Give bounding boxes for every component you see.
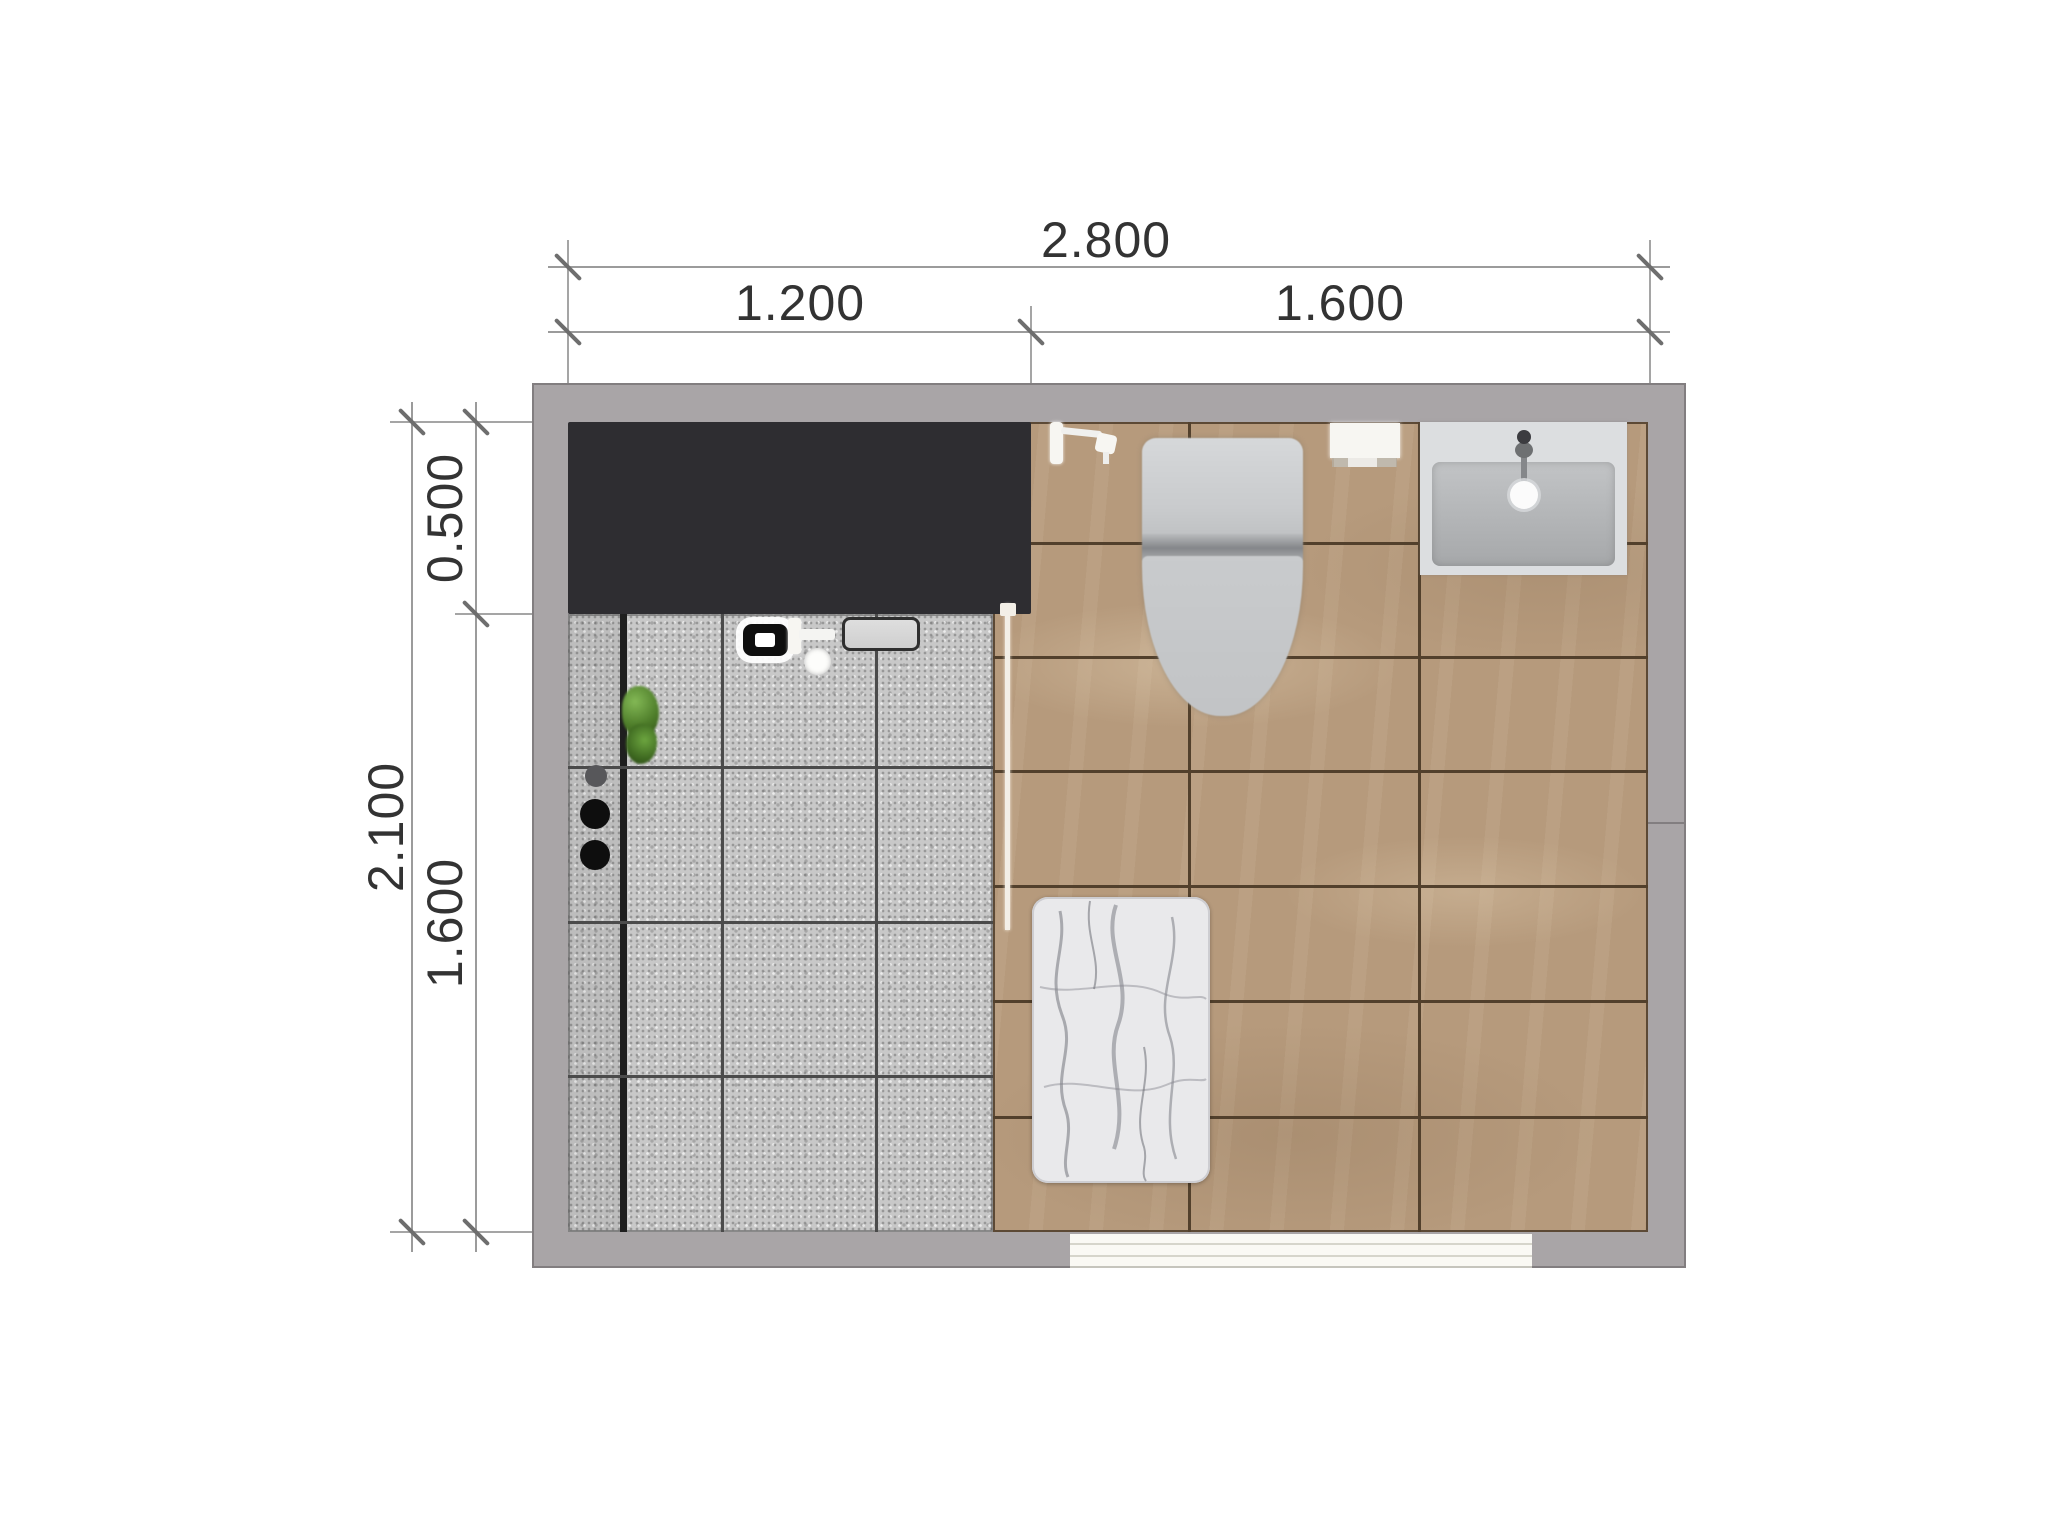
marble-bath-mat	[1032, 897, 1210, 1183]
supply-dot-gray	[585, 765, 607, 787]
wall-cistern-box	[1330, 423, 1400, 458]
toilet-tank	[1142, 438, 1303, 538]
floor-drain-icon	[804, 648, 831, 675]
hand-shower-stem	[1103, 452, 1109, 464]
shower-control-panel	[743, 624, 788, 656]
supply-dot-black	[580, 840, 610, 870]
toilet	[1142, 438, 1303, 716]
door-threshold	[1070, 1234, 1532, 1268]
wall-box-foot	[1377, 458, 1397, 467]
dim-label-height-bottom: 1.600	[416, 858, 474, 988]
dimension-line-width-segments	[548, 331, 1670, 333]
faucet-knob	[1515, 442, 1533, 458]
washbasin-drain	[1510, 481, 1538, 509]
marble-veins	[1032, 897, 1210, 1183]
dim-label-height-top: 0.500	[416, 453, 474, 583]
wall-box-foot	[1332, 458, 1348, 467]
door-track-line	[1070, 1243, 1532, 1245]
vanity-counter	[568, 422, 1031, 614]
grout-line	[993, 656, 1648, 659]
grout-line	[993, 770, 1648, 773]
grout-line	[568, 1075, 993, 1078]
floor-plan: 2.800 1.200 1.600 2.100 0.500 1.600	[0, 0, 2048, 1536]
grout-line	[993, 885, 1648, 888]
dimension-line-height-segments	[475, 402, 477, 1252]
extension-line	[455, 613, 532, 615]
wall-joint-line	[1648, 822, 1686, 824]
glass-screen-bracket	[1000, 603, 1016, 616]
dim-label-width-left: 1.200	[735, 274, 865, 332]
shower-shelf	[842, 617, 920, 651]
toilet-bowl	[1142, 556, 1303, 716]
faucet-handle-icon	[1517, 430, 1531, 444]
supply-dot-black	[580, 799, 610, 829]
door-track-line	[1070, 1255, 1532, 1257]
dim-label-total-width: 2.800	[1041, 211, 1171, 269]
extension-line	[1030, 306, 1032, 383]
extension-line	[1649, 240, 1651, 383]
grout-line	[568, 766, 993, 769]
shower-mixer-arm	[799, 629, 835, 640]
glass-screen	[1005, 604, 1010, 930]
dim-label-total-height: 2.100	[357, 762, 415, 892]
extension-line	[567, 240, 569, 383]
shower-control-screen	[755, 633, 775, 647]
washbasin	[1420, 422, 1627, 575]
dim-label-width-right: 1.600	[1275, 274, 1405, 332]
grout-line	[568, 921, 993, 924]
